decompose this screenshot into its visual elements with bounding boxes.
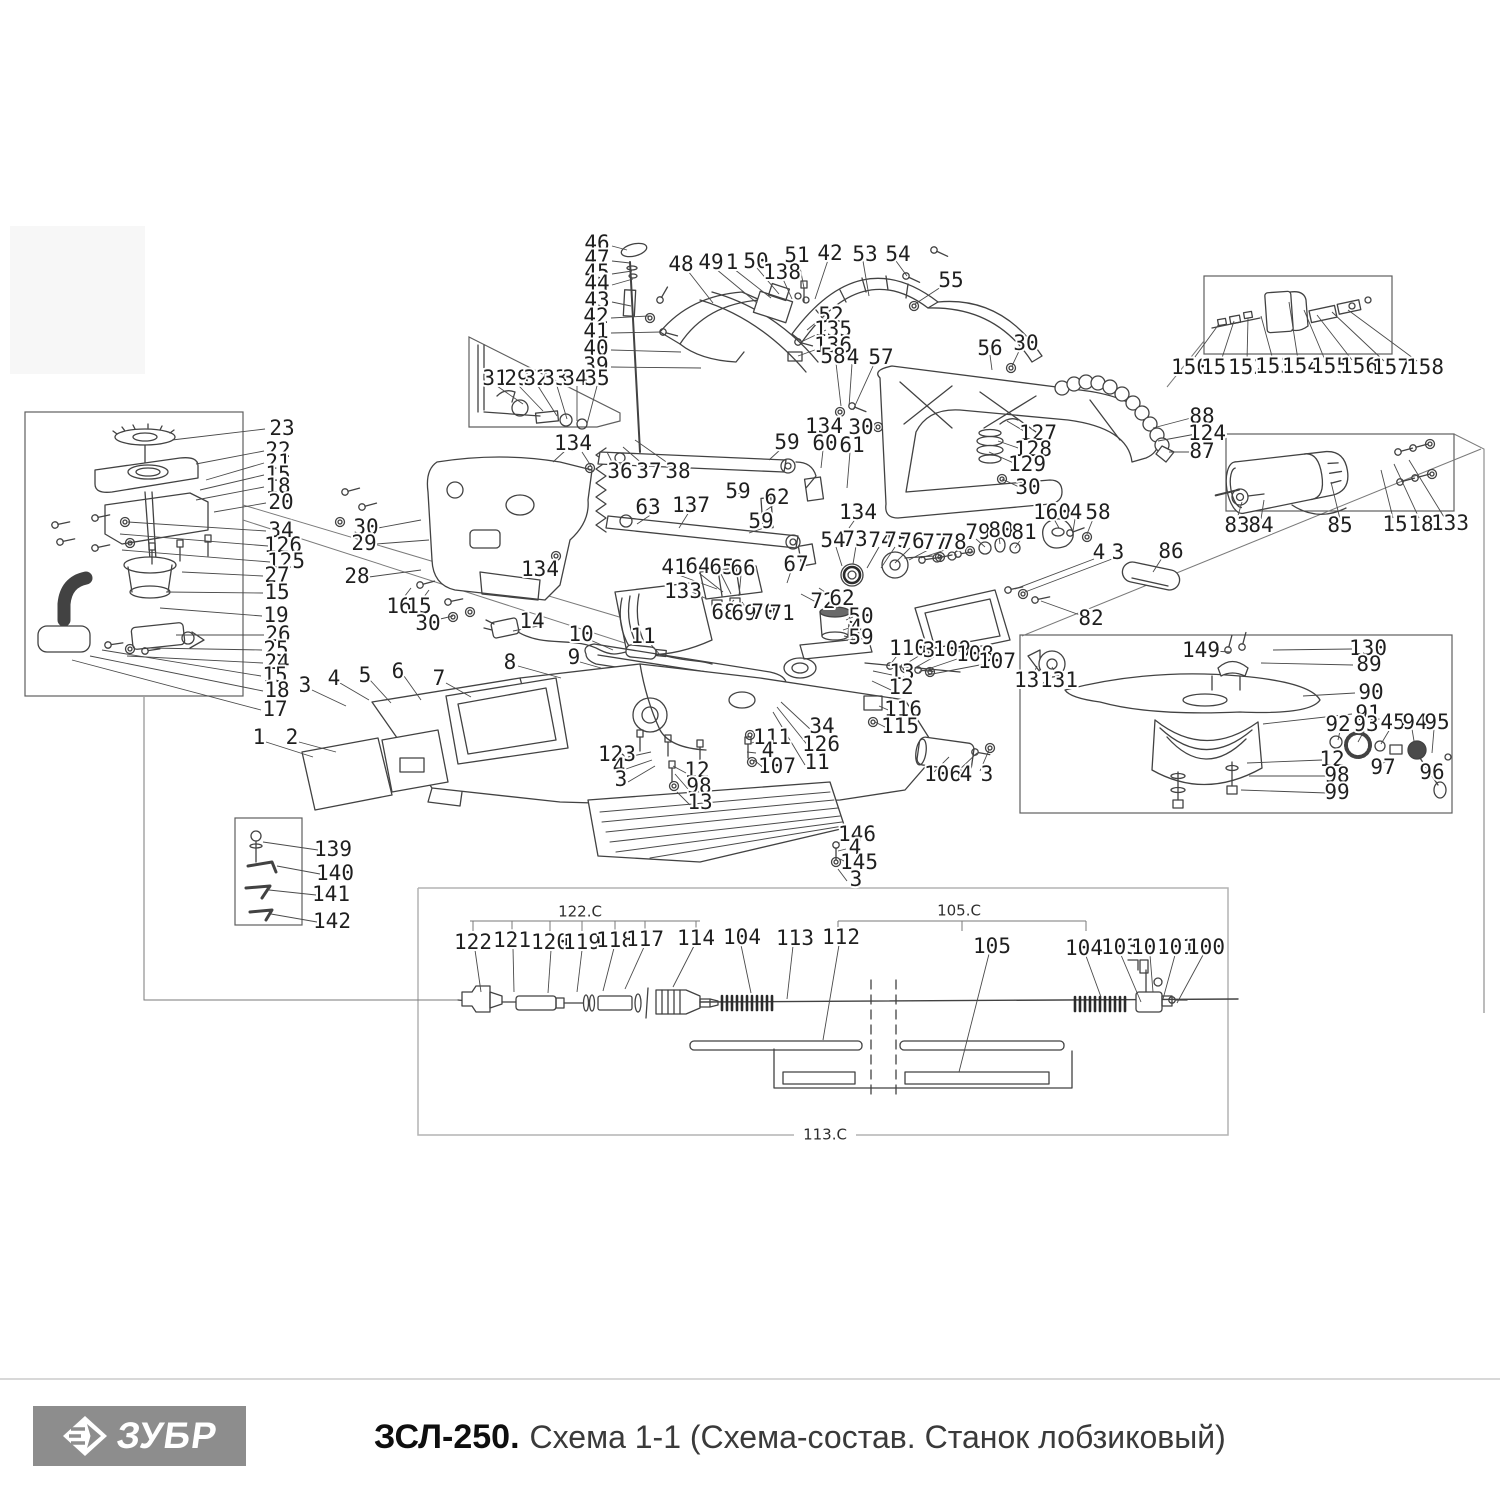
part-number-label: 20 (268, 490, 293, 514)
part-number-label: 115 (881, 714, 919, 738)
part-number-label: 9 (568, 645, 581, 669)
doc-title-model: ЗСЛ-250. (374, 1418, 520, 1456)
part-number-label: 79 (965, 520, 990, 544)
part-number-label: 134 (521, 557, 559, 581)
leader-line (369, 570, 421, 577)
part-number-label: 29 (351, 531, 376, 555)
part-number-label: 89 (1356, 652, 1381, 676)
part-number-label: 1 (726, 250, 739, 274)
part-number-label: 4 (1093, 540, 1106, 564)
leader-line (1273, 649, 1352, 650)
part-number-label: 87 (1189, 439, 1214, 463)
part-number-label: 142 (313, 909, 351, 933)
part-number-label: 23 (269, 416, 294, 440)
part-number-label: 134 (554, 431, 592, 455)
part-number-label: 96 (1419, 760, 1444, 784)
leader-line (263, 842, 318, 850)
section-label: 105.C (937, 902, 981, 920)
leader-line (196, 451, 264, 464)
tools-inset-art (246, 831, 276, 920)
part-number-label: 117 (626, 927, 664, 951)
part-number-label: 4 (1070, 500, 1083, 524)
doc-title-subtitle: Схема 1-1 (Схема-состав. Станок лобзиков… (530, 1419, 1226, 1455)
part-number-label: 38 (665, 459, 690, 483)
exploded-diagram: 4647454443424140394849150138514253545552… (0, 0, 1500, 1500)
footer-divider (0, 1378, 1500, 1380)
table-clamp-inset-art (38, 424, 208, 652)
part-number-label: 1 (253, 725, 266, 749)
leader-line (853, 364, 874, 410)
leader-line (1247, 760, 1322, 763)
leader-line (378, 520, 421, 528)
part-number-label: 30 (1015, 475, 1040, 499)
part-number-label: 3 (299, 673, 312, 697)
leader-line (200, 475, 264, 490)
part-number-label: 160 (1033, 500, 1071, 524)
part-number-label: 83 (1224, 513, 1249, 537)
part-number-label: 122 (454, 930, 492, 954)
part-number-label: 80 (988, 518, 1013, 542)
part-number-label: 133 (1431, 511, 1469, 535)
leader-line (815, 260, 828, 299)
part-number-label: 2 (286, 725, 299, 749)
part-number-label: 92 (1325, 712, 1350, 736)
part-number-label: 110 (889, 636, 927, 660)
leader-line (271, 914, 317, 922)
part-number-label: 51 (784, 243, 809, 267)
leader-line (603, 948, 614, 991)
part-number-label: 105 (973, 934, 1011, 958)
leader-line (1015, 559, 1094, 589)
part-number-label: 113 (776, 926, 814, 950)
leader-line (1241, 790, 1327, 793)
part-number-label: 106 (924, 762, 962, 786)
leader-line (172, 429, 265, 440)
part-number-label: 62 (764, 485, 789, 509)
part-number-label: 112 (822, 925, 860, 949)
part-number-label: 17 (262, 697, 287, 721)
part-number-label: 5 (359, 663, 372, 687)
part-number-label: 67 (783, 552, 808, 576)
part-number-label: 14 (519, 609, 544, 633)
inset-box-table-clamp (25, 412, 243, 696)
leader-line (1086, 956, 1101, 997)
part-number-label: 15 (1382, 512, 1407, 536)
part-number-label: 82 (1078, 606, 1103, 630)
leader-line (214, 503, 266, 512)
part-number-label: 28 (344, 564, 369, 588)
part-number-label: 107 (758, 754, 796, 778)
leader-line (611, 367, 701, 368)
part-number-label: 56 (977, 336, 1002, 360)
part-number-label: 41 (661, 555, 686, 579)
part-number-label: 59 (725, 479, 750, 503)
leader-line (1041, 601, 1080, 615)
leader-line (787, 946, 793, 999)
leader-line (625, 947, 644, 989)
part-number-label: 61 (839, 433, 864, 457)
part-number-label: 3 (850, 867, 863, 891)
part-number-label: 15 (264, 580, 289, 604)
part-number-label: 11 (804, 750, 829, 774)
blade-inset-art (458, 960, 1238, 1098)
part-number-label: 66 (730, 556, 755, 580)
part-number-label: 100 (1187, 935, 1225, 959)
bracket-105c (838, 921, 1086, 931)
leader-line (160, 608, 262, 616)
part-number-label: 76 (899, 529, 924, 553)
leader-line (182, 572, 263, 576)
part-number-label: 73 (842, 527, 867, 551)
part-number-label: 84 (1248, 513, 1273, 537)
part-number-label: 131 (1040, 668, 1078, 692)
leader-line (557, 386, 567, 419)
part-number-label: 36 (607, 459, 632, 483)
part-number-label: 3 (981, 762, 994, 786)
leader-line (847, 452, 850, 488)
leader-line (1394, 464, 1419, 518)
part-number-label: 48 (668, 252, 693, 276)
part-number-label: 49 (698, 250, 723, 274)
leader-line (150, 648, 262, 650)
leader-line (612, 271, 632, 274)
part-number-label: 3 (615, 767, 628, 791)
part-number-label: 6 (392, 659, 405, 683)
part-number-label: 64 (685, 554, 710, 578)
part-number-label: 95 (1424, 710, 1449, 734)
leader-line (673, 946, 694, 987)
leader-line (1163, 955, 1175, 999)
leader-line (1150, 955, 1153, 992)
leader-line (370, 680, 391, 703)
brand-name: ЗУБР (115, 1415, 221, 1457)
section-label: 122.C (558, 903, 602, 921)
leader-line (1177, 955, 1203, 1003)
leader-line (580, 662, 601, 668)
part-number-label: 59 (848, 625, 873, 649)
part-number-label: 53 (852, 242, 877, 266)
leader-line (166, 592, 263, 593)
part-number-label: 4 (328, 666, 341, 690)
part-number-label: 12 (888, 675, 913, 699)
leader-line (612, 302, 631, 306)
part-number-label: 3 (1112, 540, 1125, 564)
leader-line (513, 948, 514, 992)
part-number-label: 121 (493, 928, 531, 952)
leader-line (849, 364, 852, 407)
leader-line (376, 540, 429, 544)
part-number-label: 134 (839, 500, 877, 524)
leader-line (959, 954, 989, 1072)
part-number-label: 59 (774, 430, 799, 454)
leader-line (612, 279, 633, 285)
part-number-label: 57 (868, 345, 893, 369)
logo-mark-icon (61, 1414, 113, 1458)
part-number-label: 37 (636, 459, 661, 483)
part-number-label: 54 (885, 242, 910, 266)
part-number-label: 4 (960, 762, 973, 786)
motor-inset-art (1211, 445, 1351, 517)
leader-line (277, 866, 320, 874)
leader-line (741, 945, 751, 993)
part-number-label: 85 (1327, 513, 1352, 537)
part-number-label: 10 (568, 622, 593, 646)
part-number-label: 157 (1372, 355, 1410, 379)
part-number-label: 30 (1013, 331, 1038, 355)
doc-title: ЗСЛ-250.Схема 1-1 (Схема-состав. Станок … (374, 1418, 1226, 1457)
part-number-label: 4 (847, 345, 860, 369)
part-number-label: 158 (1406, 355, 1444, 379)
part-number-label: 71 (769, 601, 794, 625)
part-number-label: 55 (938, 268, 963, 292)
faint-region (10, 226, 145, 374)
leader-line (612, 261, 630, 263)
part-number-label: 8 (504, 650, 517, 674)
brand-logo: ЗУБР (33, 1406, 246, 1466)
part-number-label: 129 (1008, 452, 1046, 476)
part-number-label: 137 (672, 493, 710, 517)
section-label: 113.C (803, 1126, 847, 1144)
leader-line (611, 332, 661, 333)
part-number-label: 107 (978, 649, 1016, 673)
part-number-label: 149 (1182, 638, 1220, 662)
parts-diagram-page: 4647454443424140394849150138514253545552… (0, 0, 1500, 1500)
part-number-label: 13 (687, 790, 712, 814)
leader-line (1261, 663, 1353, 665)
leader-line (269, 890, 316, 895)
part-number-label: 99 (1324, 780, 1349, 804)
part-number-label: 86 (1158, 539, 1183, 563)
part-number-label: 78 (941, 530, 966, 554)
part-number-label: 42 (817, 241, 842, 265)
part-number-label: 18 (1408, 512, 1433, 536)
part-number-label: 11 (630, 624, 655, 648)
part-number-label: 104 (723, 925, 761, 949)
part-number-label: 133 (664, 579, 702, 603)
part-number-label: 97 (1370, 755, 1395, 779)
leader-line (611, 350, 681, 352)
leader-line (836, 363, 841, 406)
leader-line (312, 690, 346, 706)
part-number-label: 141 (312, 882, 350, 906)
part-number-label: 7 (433, 666, 446, 690)
leader-line (823, 945, 839, 1040)
part-number-label: 63 (635, 495, 660, 519)
part-number-label: 60 (812, 431, 837, 455)
leader-line (548, 950, 551, 993)
part-number-label: 35 (584, 366, 609, 390)
part-number-label: 30 (415, 611, 440, 635)
part-number-label: 58 (820, 344, 845, 368)
part-number-label: 59 (748, 509, 773, 533)
leader-line (1153, 418, 1191, 428)
part-number-label: 139 (314, 837, 352, 861)
part-number-label: 104 (1065, 936, 1103, 960)
leader-line (587, 386, 597, 424)
part-number-label: 93 (1353, 712, 1378, 736)
leader-line (577, 950, 582, 992)
part-number-label: 114 (677, 926, 715, 950)
part-number-label: 58 (1085, 500, 1110, 524)
